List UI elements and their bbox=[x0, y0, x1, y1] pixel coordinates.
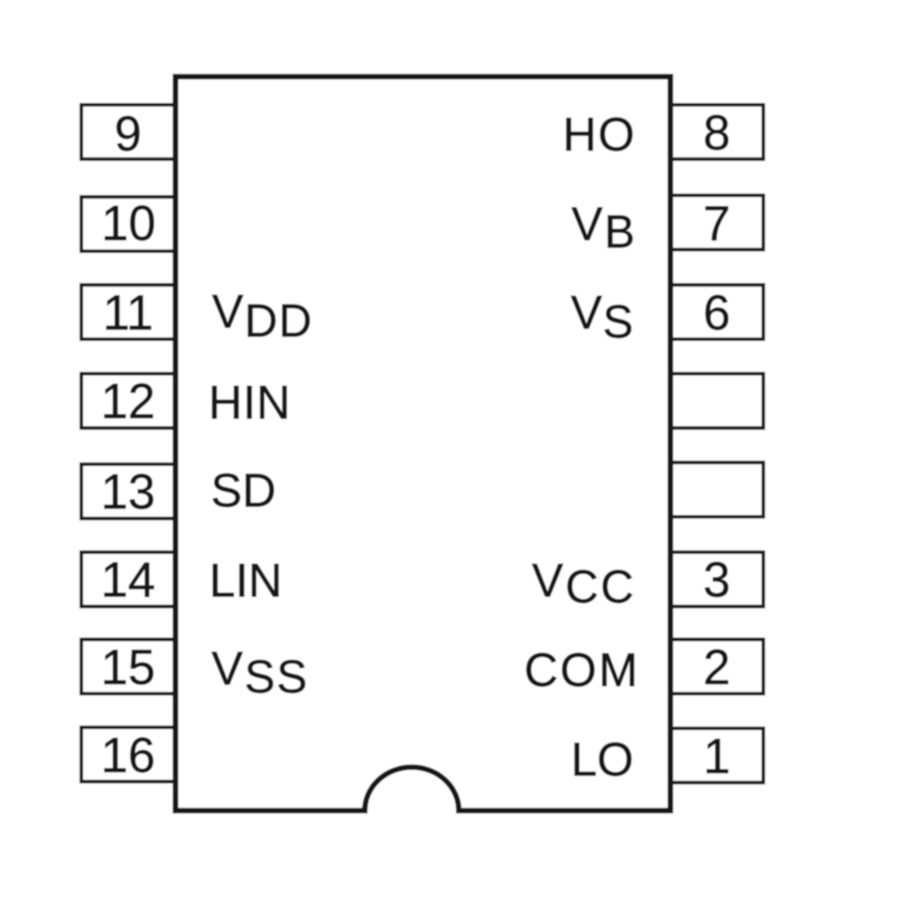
svg-text:HO: HO bbox=[563, 108, 637, 161]
svg-text:VDD: VDD bbox=[212, 285, 313, 347]
svg-text:VSS: VSS bbox=[212, 641, 309, 702]
svg-text:9: 9 bbox=[114, 108, 141, 162]
svg-text:VB: VB bbox=[571, 197, 636, 258]
svg-text:1: 1 bbox=[703, 730, 730, 784]
svg-text:2: 2 bbox=[703, 641, 730, 695]
svg-text:14: 14 bbox=[101, 554, 156, 608]
svg-text:COM: COM bbox=[524, 643, 640, 696]
svg-text:HIN: HIN bbox=[208, 375, 290, 428]
svg-text:13: 13 bbox=[101, 466, 156, 520]
svg-text:12: 12 bbox=[101, 375, 156, 429]
svg-text:LO: LO bbox=[571, 732, 634, 785]
svg-text:16: 16 bbox=[101, 729, 156, 783]
svg-text:11: 11 bbox=[103, 286, 154, 340]
svg-text:7: 7 bbox=[703, 197, 730, 251]
svg-text:15: 15 bbox=[101, 641, 156, 695]
svg-text:8: 8 bbox=[703, 107, 730, 161]
svg-text:3: 3 bbox=[703, 554, 730, 608]
svg-text:VS: VS bbox=[571, 286, 634, 348]
svg-text:6: 6 bbox=[703, 286, 730, 340]
svg-text:10: 10 bbox=[101, 197, 156, 251]
svg-text:VCC: VCC bbox=[532, 554, 636, 613]
svg-text:SD: SD bbox=[211, 464, 276, 517]
svg-text:LIN: LIN bbox=[209, 554, 282, 607]
